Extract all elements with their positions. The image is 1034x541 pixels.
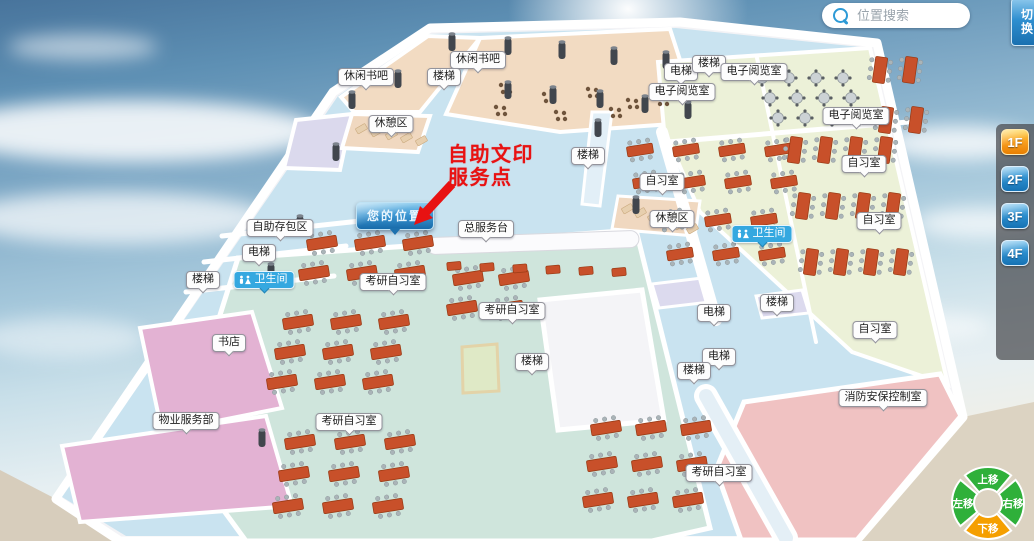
label-text: 自习室 bbox=[646, 175, 679, 187]
room-label[interactable]: 自习室 bbox=[842, 155, 887, 173]
room-label[interactable]: 自习室 bbox=[853, 321, 898, 339]
room-label[interactable]: 休闲书吧 bbox=[338, 68, 394, 86]
label-text: 电子阅览室 bbox=[829, 109, 884, 121]
label-text: 楼梯 bbox=[766, 296, 788, 308]
label-text: 自习室 bbox=[848, 157, 881, 169]
label-text: 卫生间 bbox=[255, 273, 288, 286]
label-text: 电梯 bbox=[703, 306, 725, 318]
your-location-marker[interactable]: 您的位置 bbox=[356, 202, 434, 230]
label-text: 消防安保控制室 bbox=[845, 391, 922, 403]
label-text: 考研自习室 bbox=[366, 275, 421, 287]
map-viewport[interactable]: 休闲书吧休闲书吧楼梯休憩区电梯楼梯电子阅览室电子阅览室电子阅览室楼梯自习室自习室… bbox=[0, 0, 1034, 541]
label-text: 楼梯 bbox=[683, 364, 705, 376]
search-icon bbox=[833, 8, 848, 23]
pan-label: 右移 bbox=[1002, 497, 1024, 510]
room-label[interactable]: 楼梯 bbox=[677, 362, 711, 380]
room-label[interactable]: 休闲书吧 bbox=[450, 51, 506, 69]
room-label[interactable]: 电子阅览室 bbox=[721, 63, 788, 81]
pan-label: 左移 bbox=[952, 497, 974, 510]
room-label[interactable]: 消防安保控制室 bbox=[839, 389, 928, 407]
restroom-icon bbox=[737, 229, 750, 239]
room-label[interactable]: 总服务台 bbox=[458, 220, 514, 238]
label-text: 电梯 bbox=[708, 350, 730, 362]
floor-selector: 1F2F3F4F bbox=[996, 124, 1034, 360]
annotation-line1: 自助文印 bbox=[448, 144, 534, 167]
room-label[interactable]: 自习室 bbox=[857, 212, 902, 230]
room-label[interactable]: 自习室 bbox=[640, 173, 685, 191]
floor-button-2f[interactable]: 2F bbox=[1001, 166, 1029, 192]
label-text: 自习室 bbox=[863, 214, 896, 226]
label-text: 总服务台 bbox=[464, 222, 508, 234]
label-text: 电梯 bbox=[248, 246, 270, 258]
room-label[interactable]: 考研自习室 bbox=[686, 464, 753, 482]
room-label[interactable]: 电梯 bbox=[697, 304, 731, 322]
room-label[interactable]: 物业服务部 bbox=[153, 412, 220, 430]
switch-view-button[interactable]: 切换 bbox=[1011, 0, 1034, 46]
label-text: 休憩区 bbox=[375, 117, 408, 129]
room-label[interactable]: 电子阅览室 bbox=[823, 107, 890, 125]
room-label[interactable]: 电梯 bbox=[242, 244, 276, 262]
label-text: 自助存包区 bbox=[253, 221, 308, 233]
label-text: 休憩区 bbox=[656, 212, 689, 224]
search-bar[interactable] bbox=[822, 3, 970, 28]
label-text: 考研自习室 bbox=[485, 304, 540, 316]
room-label[interactable]: 楼梯 bbox=[427, 68, 461, 86]
restroom-label[interactable]: 卫生间 bbox=[732, 225, 793, 243]
pan-label: 下移 bbox=[978, 522, 999, 535]
room-label[interactable]: 楼梯 bbox=[760, 294, 794, 312]
label-text: 楼梯 bbox=[192, 273, 214, 285]
room-label[interactable]: 考研自习室 bbox=[479, 302, 546, 320]
annotation-line2: 服务点 bbox=[448, 167, 534, 190]
label-text: 物业服务部 bbox=[159, 414, 214, 426]
search-input[interactable] bbox=[855, 7, 959, 24]
pan-compass[interactable]: 上移右移下移左移 bbox=[946, 461, 1034, 541]
floor-button-4f[interactable]: 4F bbox=[1001, 240, 1029, 266]
floor-button-3f[interactable]: 3F bbox=[1001, 203, 1029, 229]
floor-button-1f[interactable]: 1F bbox=[1001, 129, 1029, 155]
room-label[interactable]: 考研自习室 bbox=[360, 273, 427, 291]
room-label[interactable]: 书店 bbox=[212, 334, 246, 352]
label-text: 自习室 bbox=[859, 323, 892, 335]
room-label[interactable]: 楼梯 bbox=[186, 271, 220, 289]
room-label[interactable]: 楼梯 bbox=[515, 353, 549, 371]
room-label[interactable]: 电子阅览室 bbox=[649, 83, 716, 101]
self-print-annotation: 自助文印 服务点 bbox=[448, 144, 534, 190]
label-text: 卫生间 bbox=[753, 227, 786, 240]
label-text: 休闲书吧 bbox=[456, 53, 500, 65]
restroom-label[interactable]: 卫生间 bbox=[234, 271, 295, 289]
label-text: 书店 bbox=[218, 336, 240, 348]
label-text: 考研自习室 bbox=[692, 466, 747, 478]
label-text: 考研自习室 bbox=[322, 415, 377, 427]
label-text: 电子阅览室 bbox=[655, 85, 710, 97]
room-label[interactable]: 考研自习室 bbox=[316, 413, 383, 431]
label-text: 楼梯 bbox=[433, 70, 455, 82]
room-label[interactable]: 休憩区 bbox=[369, 115, 414, 133]
restroom-icon bbox=[239, 275, 252, 285]
label-text: 电子阅览室 bbox=[727, 65, 782, 77]
label-text: 电梯 bbox=[670, 65, 692, 77]
label-text: 楼梯 bbox=[698, 57, 720, 69]
room-label[interactable]: 休憩区 bbox=[650, 210, 695, 228]
your-location-label: 您的位置 bbox=[367, 209, 423, 223]
label-text: 楼梯 bbox=[577, 149, 599, 161]
pan-label: 上移 bbox=[978, 473, 999, 486]
label-text: 休闲书吧 bbox=[344, 70, 388, 82]
label-text: 楼梯 bbox=[521, 355, 543, 367]
room-label[interactable]: 楼梯 bbox=[571, 147, 605, 165]
map-label-layer: 休闲书吧休闲书吧楼梯休憩区电梯楼梯电子阅览室电子阅览室电子阅览室楼梯自习室自习室… bbox=[0, 0, 1034, 541]
room-label[interactable]: 自助存包区 bbox=[247, 219, 314, 237]
